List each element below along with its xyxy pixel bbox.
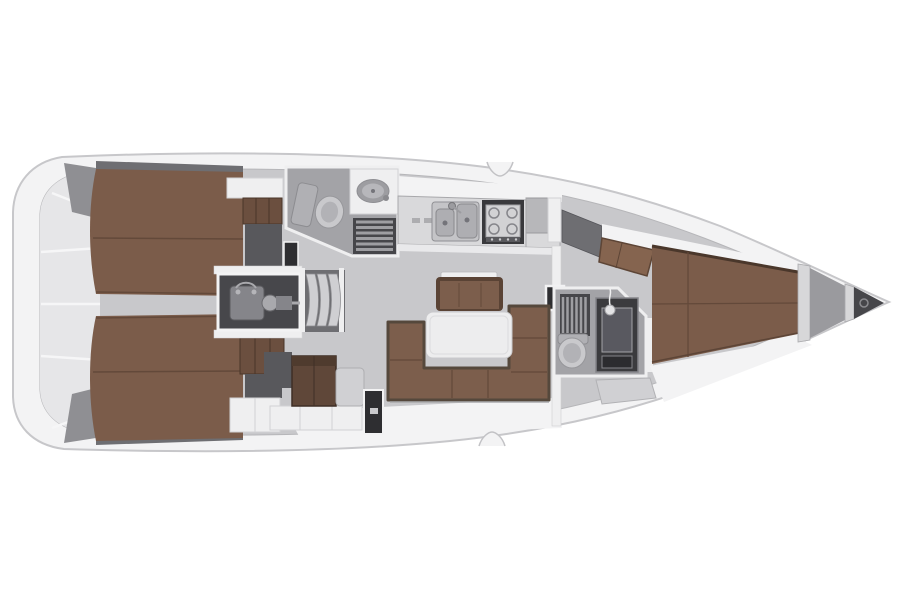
wardrobe-starboard [243,198,282,224]
counter-latch-2 [424,218,432,223]
bow-tip-locker [854,287,884,319]
counter-latch-1 [412,218,420,223]
anchor-locker [798,264,884,342]
engine-compartment [214,266,302,338]
engine-cap-1 [236,290,241,295]
locker-starboard [227,178,283,198]
washbasin-aft-faucet [383,195,389,201]
entry-seat [336,368,364,406]
forward-cabinet-white [548,198,561,242]
yacht-floorplan-page [0,0,900,600]
mid-locker-band [270,406,362,430]
galley [398,196,560,255]
engine-block [230,286,264,320]
sink-right-drain [465,218,470,223]
fridge-top [526,198,549,233]
vanity-drawer [602,356,632,368]
engine-cap-2 [252,290,257,295]
vanity-mirror [602,308,632,352]
cabin-door-starboard [284,242,298,268]
vanity-panel-starboard [245,224,282,268]
toilet-forward-seat [563,343,581,363]
engine-gearbox [276,296,292,310]
yacht-floorplan [0,0,900,600]
forward-head-door [646,318,653,372]
cabin-door-port-latch [370,408,378,414]
bow-bulkhead-2 [845,284,854,322]
shower-head [605,305,615,315]
engine-pulley [262,295,278,311]
companionway-steps [300,268,345,332]
sink-left-drain [443,221,448,226]
bow-bulkhead-1 [798,264,810,342]
salon-table [426,312,512,358]
steps-rail-left [300,268,305,332]
washbasin-aft-drain [371,189,375,193]
entry-panel-dark [264,352,292,388]
sideboard-bench-face [440,281,499,309]
